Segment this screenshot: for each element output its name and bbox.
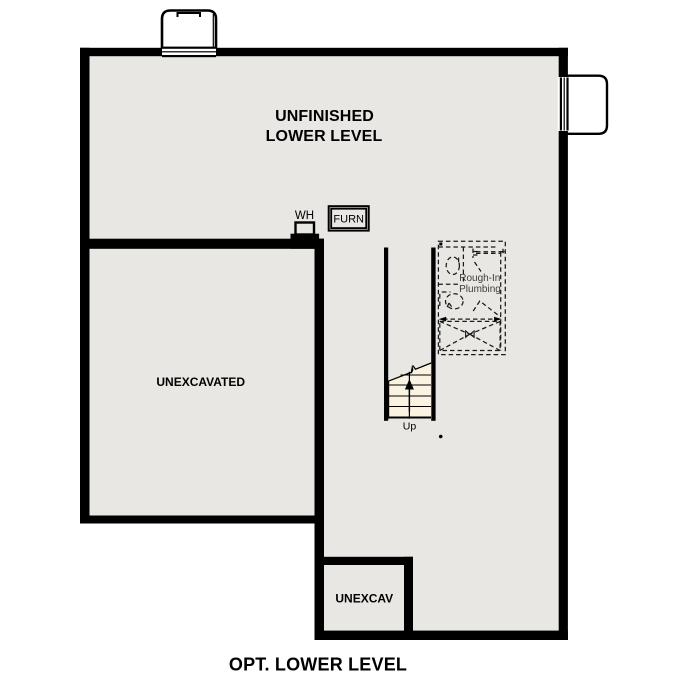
svg-text:WH: WH [295, 210, 314, 222]
svg-text:UNFINISHED: UNFINISHED [275, 108, 374, 125]
svg-text:UNEXCAV: UNEXCAV [335, 591, 393, 605]
svg-text:Rough-In: Rough-In [459, 273, 500, 284]
svg-text:FURN: FURN [333, 213, 364, 225]
svg-text:Plumbing: Plumbing [459, 284, 501, 295]
svg-text:OPT. LOWER LEVEL: OPT. LOWER LEVEL [229, 655, 407, 675]
svg-text:Up: Up [403, 421, 417, 433]
svg-text:UNEXCAVATED: UNEXCAVATED [156, 375, 245, 389]
svg-text:LOWER LEVEL: LOWER LEVEL [266, 128, 383, 145]
